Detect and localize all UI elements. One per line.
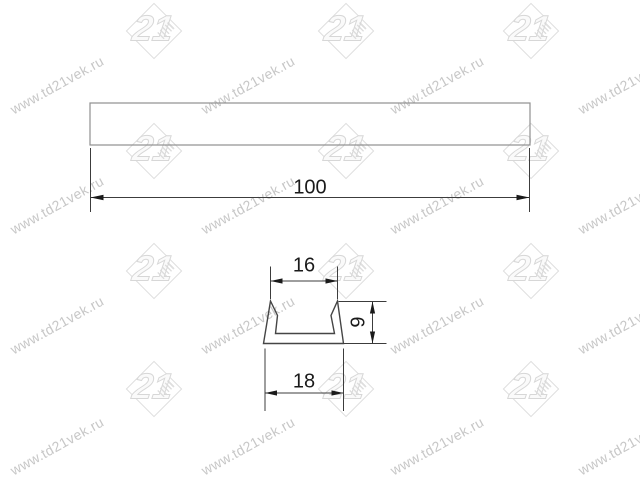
- dim16-arrow-left-icon: [271, 278, 283, 283]
- dim18-arrow-left-icon: [265, 390, 277, 395]
- dim-label-top-width-16: 16: [293, 255, 315, 278]
- dim-label-bottom-width-18: 18: [293, 371, 315, 394]
- dim9-arrow-up-icon: [370, 302, 375, 314]
- dim100-arrow-right-icon: [517, 195, 530, 200]
- technical-drawing-canvas: www.td21vek.ru www.td21vek.ru www.td21ve…: [0, 0, 640, 480]
- dim-label-height-9: 9: [348, 316, 371, 327]
- dim9-arrow-down-icon: [370, 332, 375, 344]
- dim100-arrow-left-icon: [91, 195, 104, 200]
- dim18-arrow-right-icon: [332, 390, 344, 395]
- profile-cross-section-outline: [264, 301, 344, 344]
- drawing-linework: [0, 0, 640, 480]
- dim-label-length-100: 100: [293, 177, 326, 200]
- profile-front-view-outline: [90, 103, 530, 145]
- dim16-arrow-right-icon: [326, 278, 338, 283]
